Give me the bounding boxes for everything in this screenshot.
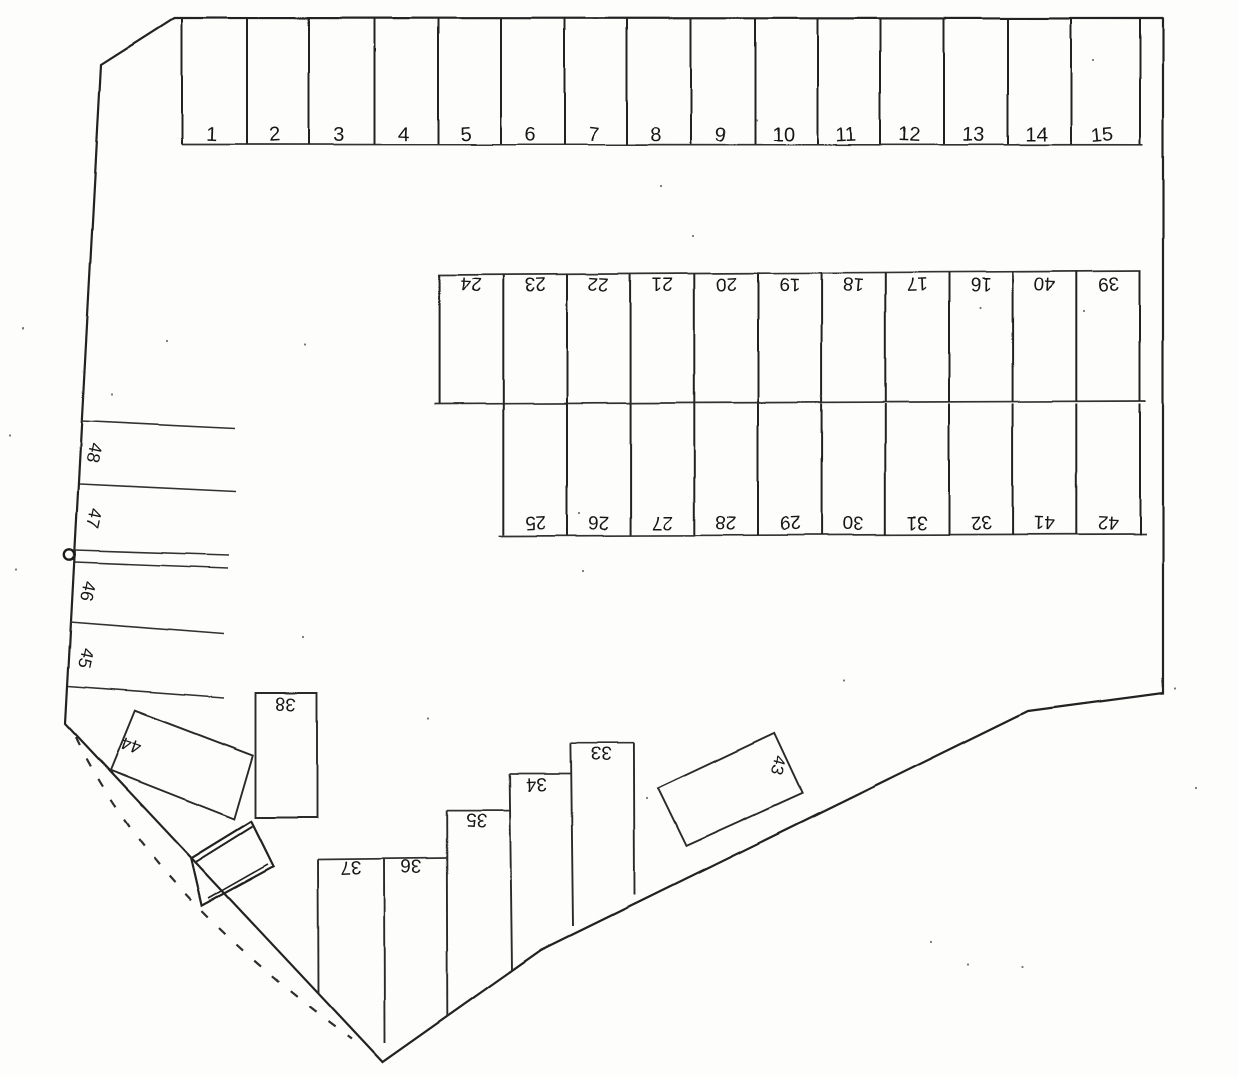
svg-text:2: 2 <box>269 124 281 147</box>
svg-text:31: 31 <box>907 512 928 533</box>
svg-text:7: 7 <box>587 124 600 147</box>
svg-text:16: 16 <box>970 273 991 294</box>
svg-text:35: 35 <box>466 808 488 830</box>
svg-text:28: 28 <box>714 511 737 533</box>
svg-text:24: 24 <box>460 272 483 294</box>
svg-text:23: 23 <box>524 273 546 295</box>
svg-text:12: 12 <box>898 123 921 146</box>
svg-text:6: 6 <box>524 124 536 146</box>
svg-text:19: 19 <box>779 273 801 295</box>
svg-text:25: 25 <box>524 511 546 533</box>
svg-text:8: 8 <box>650 124 662 146</box>
svg-text:9: 9 <box>714 124 727 147</box>
svg-text:37: 37 <box>340 856 362 878</box>
svg-text:39: 39 <box>1097 272 1120 294</box>
svg-text:4: 4 <box>397 124 409 147</box>
svg-text:45: 45 <box>74 646 98 670</box>
svg-text:27: 27 <box>652 512 673 533</box>
svg-text:14: 14 <box>1025 124 1047 146</box>
svg-text:41: 41 <box>1033 511 1055 533</box>
svg-text:32: 32 <box>970 511 993 533</box>
svg-text:10: 10 <box>772 124 794 146</box>
svg-text:48: 48 <box>82 441 106 465</box>
svg-text:26: 26 <box>588 511 610 533</box>
svg-text:1: 1 <box>206 124 218 146</box>
svg-text:20: 20 <box>715 272 737 294</box>
svg-text:18: 18 <box>842 272 865 295</box>
svg-text:13: 13 <box>962 124 985 147</box>
svg-text:11: 11 <box>835 124 857 147</box>
svg-text:47: 47 <box>82 506 106 530</box>
svg-text:3: 3 <box>333 124 344 146</box>
svg-text:46: 46 <box>76 579 100 603</box>
svg-text:5: 5 <box>460 124 473 147</box>
svg-text:33: 33 <box>590 742 612 764</box>
svg-text:29: 29 <box>779 511 801 533</box>
svg-text:15: 15 <box>1090 123 1114 147</box>
svg-text:22: 22 <box>587 272 610 294</box>
svg-text:38: 38 <box>275 692 297 714</box>
svg-text:40: 40 <box>1033 272 1055 294</box>
svg-text:21: 21 <box>652 273 673 294</box>
svg-text:17: 17 <box>906 273 928 295</box>
svg-text:34: 34 <box>525 772 548 794</box>
svg-text:36: 36 <box>400 855 422 877</box>
svg-text:30: 30 <box>842 511 864 533</box>
svg-text:42: 42 <box>1097 511 1119 533</box>
